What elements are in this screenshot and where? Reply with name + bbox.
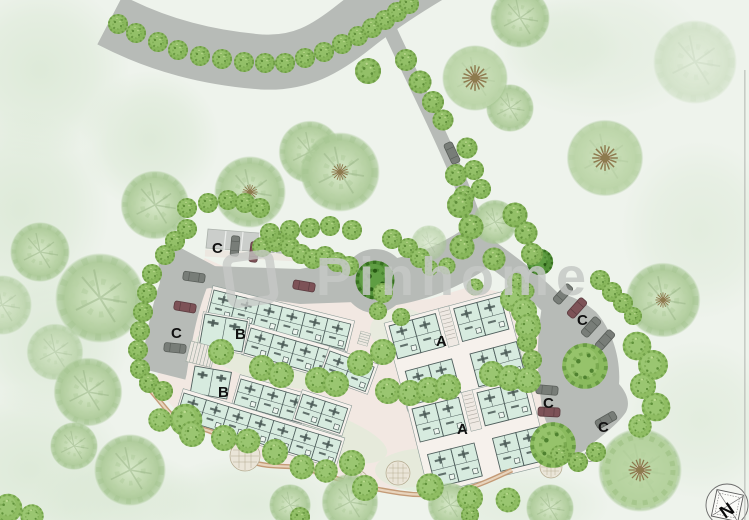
- svg-text:B: B: [218, 384, 229, 401]
- svg-text:C: C: [543, 395, 554, 412]
- svg-text:C: C: [598, 419, 609, 436]
- svg-text:A: A: [436, 333, 447, 350]
- svg-text:C: C: [212, 240, 223, 257]
- svg-text:A: A: [457, 421, 468, 438]
- svg-text:C: C: [577, 312, 588, 329]
- svg-text:Pinhome: Pinhome: [316, 247, 593, 307]
- svg-text:C: C: [171, 325, 182, 342]
- svg-text:B: B: [235, 326, 246, 343]
